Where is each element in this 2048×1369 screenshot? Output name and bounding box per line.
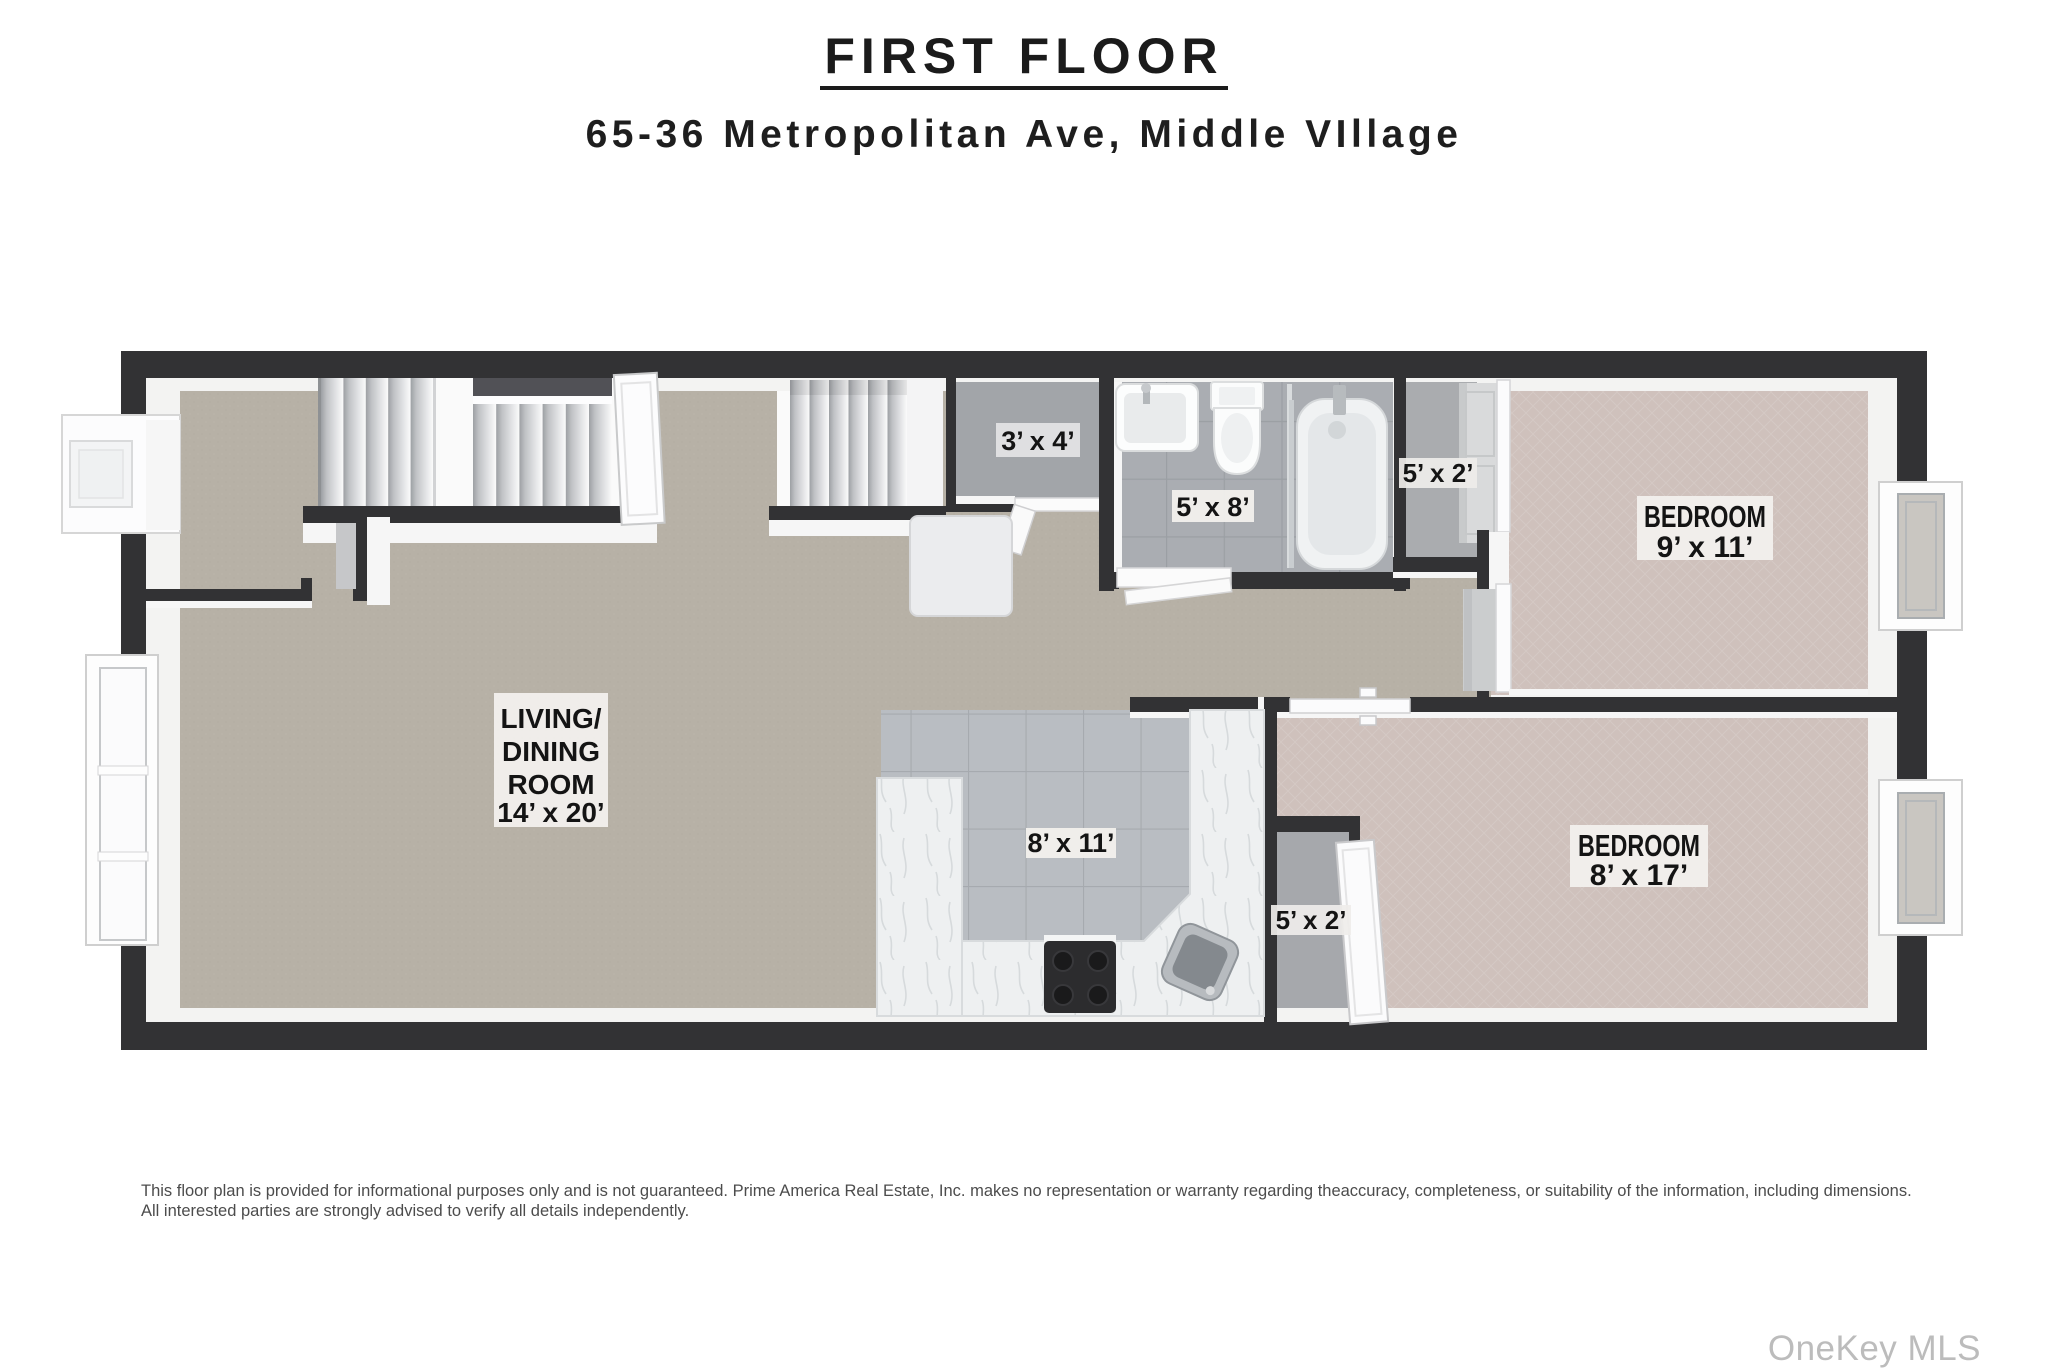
svg-text:LIVING/: LIVING/: [500, 703, 601, 734]
svg-text:BEDROOM: BEDROOM: [1644, 499, 1766, 534]
svg-text:9’ x 11’: 9’ x 11’: [1657, 531, 1754, 564]
svg-text:BEDROOM: BEDROOM: [1578, 828, 1700, 863]
svg-text:3’ x 4’: 3’ x 4’: [1001, 426, 1075, 456]
svg-text:5’ x 2’: 5’ x 2’: [1276, 905, 1347, 935]
svg-text:5’ x 8’: 5’ x 8’: [1176, 492, 1250, 522]
svg-text:14’ x 20’: 14’ x 20’: [497, 797, 604, 828]
svg-text:DINING: DINING: [502, 736, 600, 767]
svg-text:5’ x 2’: 5’ x 2’: [1403, 458, 1474, 488]
svg-text:8’ x 17’: 8’ x 17’: [1590, 859, 1688, 892]
svg-text:8’ x 11’: 8’ x 11’: [1027, 828, 1114, 858]
svg-text:ROOM: ROOM: [507, 769, 594, 800]
